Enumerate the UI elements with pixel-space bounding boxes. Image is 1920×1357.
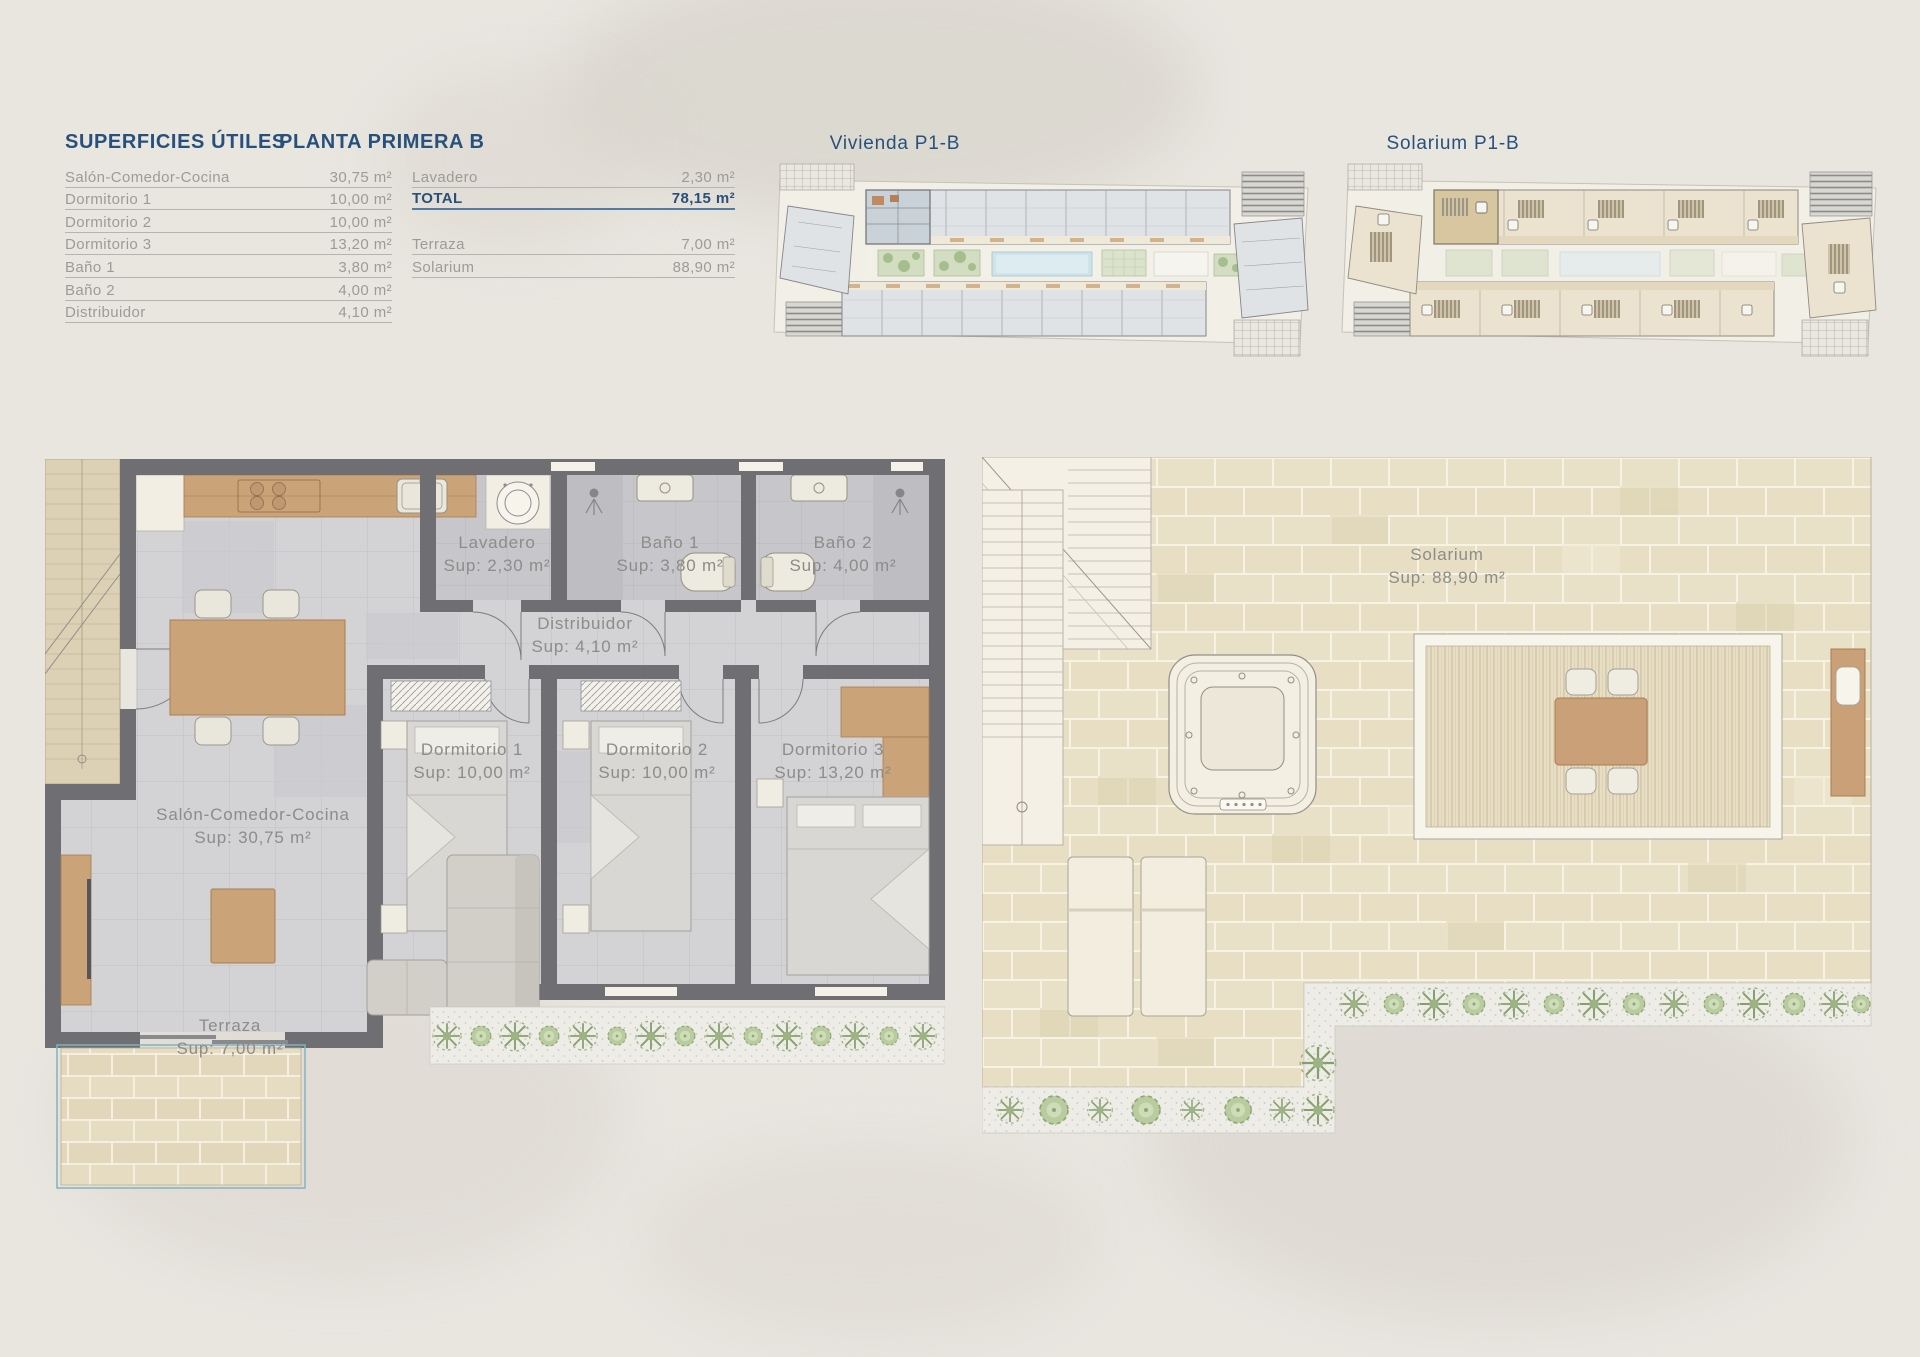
room-label: Baño 2 bbox=[65, 283, 115, 298]
room-label: Salón-Comedor-Cocina bbox=[65, 170, 230, 185]
room-area: 3,80 m² bbox=[338, 260, 392, 275]
shower-icon bbox=[590, 489, 599, 498]
room-area: 10,00 m² bbox=[330, 192, 392, 207]
room-label-distribuidor: DistribuidorSup: 4,10 m² bbox=[532, 612, 639, 658]
outdoor-sideboard bbox=[1831, 649, 1865, 796]
bottom-roof-bar bbox=[1410, 282, 1774, 336]
room-label: Terraza bbox=[412, 237, 465, 252]
shower-icon bbox=[896, 489, 905, 498]
courtyard bbox=[1434, 248, 1814, 278]
room-label-lavadero: LavaderoSup: 2,30 m² bbox=[444, 531, 551, 577]
total-label: TOTAL bbox=[412, 191, 463, 206]
brochure-page: SUPERFICIES ÚTILES PLANTA PRIMERA B Saló… bbox=[0, 0, 1920, 1357]
areas-table-left: Salón-Comedor-Cocina30,75 m² Dormitorio … bbox=[65, 165, 392, 323]
room-label-dormitorio3: Dormitorio 3Sup: 13,20 m² bbox=[774, 738, 891, 784]
tv-icon bbox=[87, 879, 91, 979]
table-row: Dormitorio 110,00 m² bbox=[65, 188, 392, 211]
room-label-bano1: Baño 1Sup: 3,80 m² bbox=[617, 531, 724, 577]
table-row: Salón-Comedor-Cocina30,75 m² bbox=[65, 165, 392, 188]
solarium-overview-plan bbox=[1338, 162, 1883, 368]
table-row: Dormitorio 210,00 m² bbox=[65, 210, 392, 233]
total-area: 78,15 m² bbox=[672, 191, 735, 206]
room-area: 4,10 m² bbox=[338, 305, 392, 320]
room-label-dormitorio1: Dormitorio 1Sup: 10,00 m² bbox=[413, 738, 530, 784]
table-row: Distribuidor4,10 m² bbox=[65, 301, 392, 324]
garden-strip bbox=[430, 1007, 945, 1064]
room-area: 2,30 m² bbox=[681, 170, 735, 185]
areas-table-right: Lavadero2,30 m² TOTAL78,15 m² Terraza7,0… bbox=[412, 165, 735, 278]
vivienda-overview-plan bbox=[770, 162, 1315, 368]
room-label-terraza: TerrazaSup: 7,00 m² bbox=[177, 1014, 284, 1060]
table-row: Baño 13,80 m² bbox=[65, 255, 392, 278]
room-label-salon: Salón-Comedor-CocinaSup: 30,75 m² bbox=[156, 803, 350, 849]
top-building-bar bbox=[866, 190, 1230, 244]
table-row: Baño 24,00 m² bbox=[65, 278, 392, 301]
room-label: Solarium bbox=[412, 260, 474, 275]
table-title: SUPERFICIES ÚTILES bbox=[65, 131, 286, 154]
room-area: 7,00 m² bbox=[681, 237, 735, 252]
terrace bbox=[57, 1045, 305, 1188]
room-label: Dormitorio 3 bbox=[65, 237, 152, 252]
room-area: 13,20 m² bbox=[330, 237, 392, 252]
table-row: Lavadero2,30 m² bbox=[412, 165, 735, 188]
tv-sideboard bbox=[61, 855, 91, 1005]
room-label-dormitorio2: Dormitorio 2Sup: 10,00 m² bbox=[598, 738, 715, 784]
room-area: 10,00 m² bbox=[330, 215, 392, 230]
vivienda-overview-title: Vivienda P1-B bbox=[830, 133, 960, 155]
washing-machine-icon bbox=[486, 475, 550, 529]
outdoor-table bbox=[1555, 698, 1647, 765]
table-subtitle: PLANTA PRIMERA B bbox=[279, 131, 485, 154]
room-label: Lavadero bbox=[412, 170, 478, 185]
solarium-overview-title: Solarium P1-B bbox=[1387, 133, 1520, 155]
room-area: 88,90 m² bbox=[673, 260, 735, 275]
room-label: Dormitorio 2 bbox=[65, 215, 152, 230]
wood-deck bbox=[1414, 634, 1782, 839]
room-label: Distribuidor bbox=[65, 305, 146, 320]
coffee-table bbox=[211, 889, 275, 963]
room-area: 4,00 m² bbox=[338, 283, 392, 298]
room-label: Dormitorio 1 bbox=[65, 192, 152, 207]
courtyard bbox=[866, 248, 1246, 278]
room-area: 30,75 m² bbox=[330, 170, 392, 185]
table-row: Dormitorio 313,20 m² bbox=[65, 233, 392, 256]
staircase bbox=[45, 459, 120, 784]
jacuzzi bbox=[1169, 655, 1316, 814]
room-label-solarium: SolariumSup: 88,90 m² bbox=[1388, 543, 1505, 589]
table-row: Terraza7,00 m² bbox=[412, 233, 735, 256]
table-row-total: TOTAL78,15 m² bbox=[412, 188, 735, 211]
bottom-building-bar bbox=[842, 282, 1206, 336]
top-roof-bar bbox=[1434, 190, 1798, 244]
table-row: Solarium88,90 m² bbox=[412, 255, 735, 278]
room-label: Baño 1 bbox=[65, 260, 115, 275]
room-label-bano2: Baño 2Sup: 4,00 m² bbox=[790, 531, 897, 577]
table-spacer bbox=[412, 210, 735, 233]
